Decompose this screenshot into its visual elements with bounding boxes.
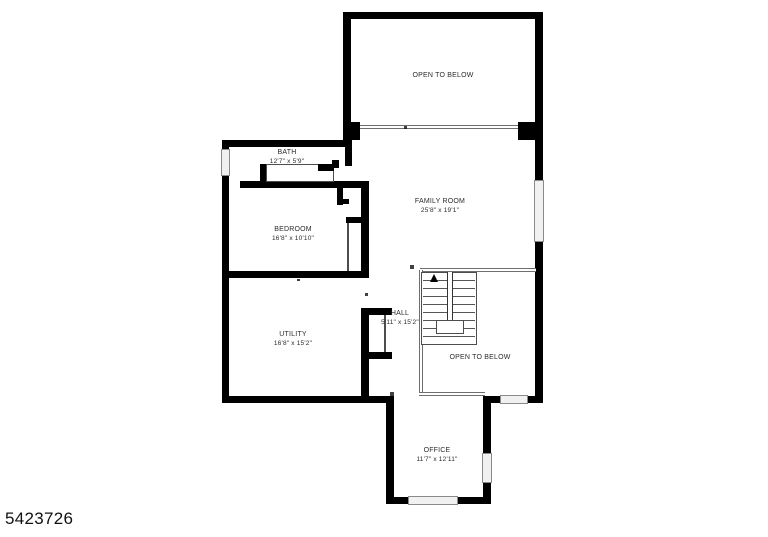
room-name: BATH bbox=[237, 148, 337, 157]
window-open-below-bottom bbox=[500, 395, 528, 404]
wall-right-exterior bbox=[535, 135, 543, 403]
window-bath-left bbox=[221, 149, 230, 176]
wall-bath-family-divider bbox=[345, 140, 352, 166]
wall-duct-stub bbox=[337, 199, 349, 204]
room-label-bedroom: BEDROOM 16'8" x 10'10" bbox=[243, 225, 343, 243]
railing-open-below-bottom bbox=[419, 392, 485, 396]
stairs-landing bbox=[436, 320, 464, 334]
plan-tick bbox=[297, 279, 300, 281]
room-name: OPEN TO BELOW bbox=[420, 353, 540, 362]
room-dims: 12'7" x 5'9" bbox=[237, 157, 337, 166]
wall-corner-block-left bbox=[343, 122, 360, 140]
room-name: FAMILY ROOM bbox=[390, 197, 490, 206]
room-dims: 16'8" x 10'10" bbox=[243, 234, 343, 243]
room-name: OPEN TO BELOW bbox=[383, 71, 503, 80]
stairs-direction-arrow-icon bbox=[430, 274, 438, 282]
room-label-office: OFFICE 11'7" x 12'11" bbox=[387, 446, 487, 464]
wall-bath-top bbox=[222, 140, 352, 147]
floor-plan-page: OPEN TO BELOW BATH 12'7" x 5'9" FAMILY R… bbox=[0, 0, 768, 537]
room-label-open-below-top: OPEN TO BELOW bbox=[383, 71, 503, 80]
room-dims: 25'8" x 19'1" bbox=[390, 206, 490, 215]
room-label-utility: UTILITY 16'8" x 15'2" bbox=[243, 330, 343, 348]
listing-id-text: 5423726 bbox=[5, 509, 73, 529]
room-name: UTILITY bbox=[243, 330, 343, 339]
wall-bedroom-bottom bbox=[222, 271, 369, 278]
plan-tick bbox=[410, 265, 414, 269]
room-name: BEDROOM bbox=[243, 225, 343, 234]
room-dims: 16'8" x 15'2" bbox=[243, 339, 343, 348]
window-family-room-right bbox=[534, 180, 544, 242]
stairs-center-divider bbox=[447, 272, 453, 326]
room-label-open-below-lower: OPEN TO BELOW bbox=[420, 353, 540, 362]
railing-upper-opening bbox=[360, 125, 518, 129]
room-name: HALL bbox=[368, 309, 432, 318]
wall-bedroom-right bbox=[361, 181, 369, 278]
room-label-bath: BATH 12'7" x 5'9" bbox=[237, 148, 337, 166]
room-label-hall: HALL 5'11" x 15'2" bbox=[368, 309, 432, 327]
room-name: OFFICE bbox=[387, 446, 487, 455]
closet-front-line bbox=[347, 223, 349, 271]
plan-tick bbox=[404, 126, 407, 129]
room-dims: 11'7" x 12'11" bbox=[387, 455, 487, 464]
wall-bath-bottom bbox=[240, 181, 362, 188]
wall-hall-closet-stub-bottom bbox=[369, 352, 392, 359]
stair-tread bbox=[423, 336, 475, 337]
plan-tick bbox=[390, 392, 394, 396]
wall-top-section-top bbox=[343, 12, 543, 19]
room-label-family-room: FAMILY ROOM 25'8" x 19'1" bbox=[390, 197, 490, 215]
window-office-bottom bbox=[408, 496, 458, 505]
plan-tick bbox=[365, 293, 368, 296]
wall-top-section-left bbox=[343, 12, 351, 140]
room-dims: 5'11" x 15'2" bbox=[368, 318, 432, 327]
